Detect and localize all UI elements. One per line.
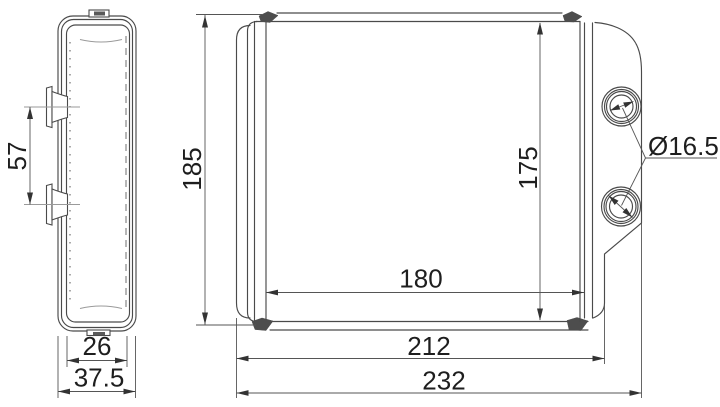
dimension-core-height: 175 <box>513 23 543 321</box>
side-body-outer <box>58 16 136 331</box>
dim-overall-depth-label: 37.5 <box>74 363 125 393</box>
port-lower <box>602 187 641 226</box>
dim-face-width-label: 26 <box>83 331 112 361</box>
side-bottom-arc <box>80 306 122 309</box>
dim-body-width-label: 212 <box>407 331 450 361</box>
dimension-port-diameter: Ø16.5 <box>622 108 719 206</box>
dimension-body-width: 212 <box>237 331 605 361</box>
technical-drawing-canvas: 57 26 37.5 <box>0 0 720 407</box>
dim-port-spacing-label: 57 <box>2 142 32 171</box>
bottom-left-clip <box>252 318 273 331</box>
dimension-overall-width: 232 <box>237 366 642 396</box>
side-top-tab-insert <box>94 12 105 16</box>
side-body-inner <box>67 25 130 322</box>
top-left-clip <box>259 12 278 23</box>
dimension-port-spacing: 57 <box>2 107 33 205</box>
dimension-overall-height: 185 <box>177 15 262 326</box>
dim-overall-width-label: 232 <box>422 366 465 396</box>
front-view: Ø16.5 185 175 180 <box>177 12 719 399</box>
left-tank-mid <box>248 22 258 322</box>
side-view: 57 26 37.5 <box>2 10 136 398</box>
side-top-arc <box>80 40 122 43</box>
dim-overall-height-label: 185 <box>177 147 207 190</box>
port-upper <box>602 87 641 126</box>
right-tank-shell <box>593 23 642 319</box>
bottom-right-clip <box>567 318 588 331</box>
side-body-mid <box>62 20 133 328</box>
dim-core-height-label: 175 <box>513 146 543 189</box>
dimension-core-width: 180 <box>266 264 584 296</box>
dim-core-width-label: 180 <box>399 264 442 294</box>
top-right-clip <box>563 12 582 23</box>
dim-port-diameter-label: Ø16.5 <box>648 131 719 161</box>
technical-drawing: 57 26 37.5 <box>0 0 720 407</box>
